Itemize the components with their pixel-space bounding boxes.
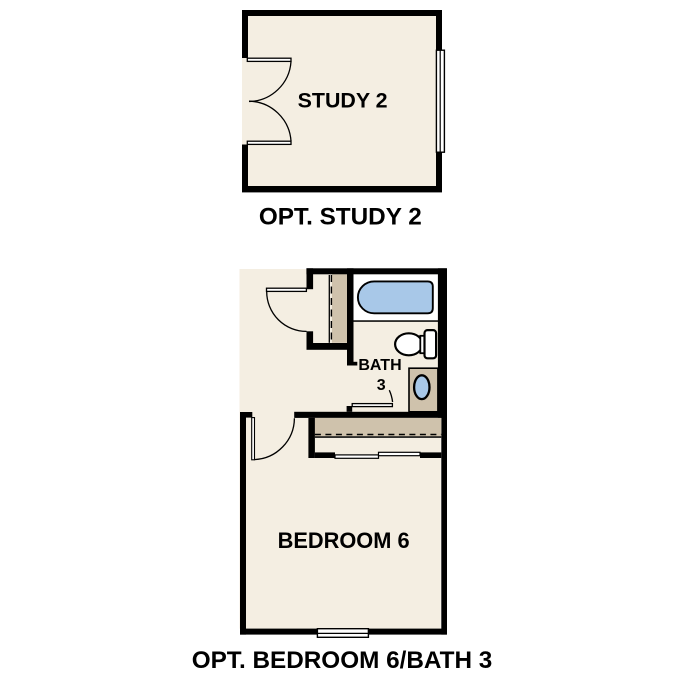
svg-text:BATH: BATH: [358, 357, 401, 374]
svg-text:STUDY 2: STUDY 2: [298, 88, 388, 112]
svg-text:OPT. STUDY 2: OPT. STUDY 2: [259, 203, 422, 230]
svg-text:OPT. BEDROOM 6/BATH 3: OPT. BEDROOM 6/BATH 3: [192, 647, 493, 674]
svg-text:BEDROOM 6: BEDROOM 6: [278, 528, 410, 553]
svg-text:3: 3: [377, 377, 386, 394]
